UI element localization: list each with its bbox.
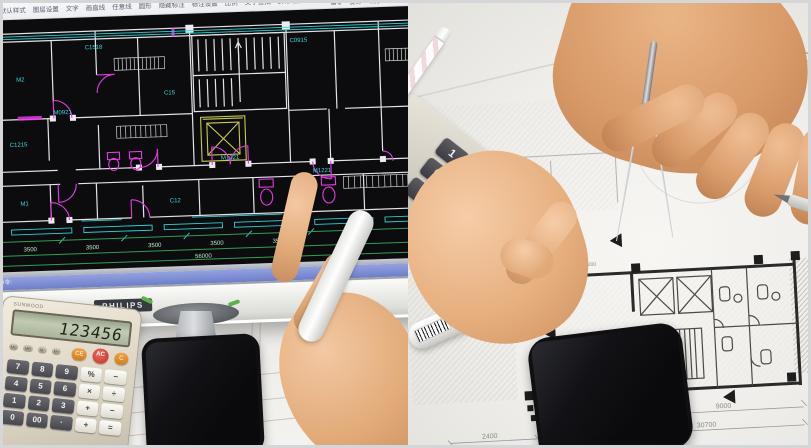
menu-item[interactable]: 屏幕缩放 [277,3,303,6]
svg-text:30700: 30700 [697,422,717,430]
cad-elevator-shaft [201,116,247,162]
menu-item[interactable]: 任意线 [112,3,132,11]
calc-key: 3 [52,398,75,414]
calc-key: 1 [3,393,26,409]
svg-text:C15: C15 [164,90,176,96]
svg-text:M1021: M1021 [221,155,240,162]
menu-item[interactable]: 文字查找 [244,3,270,7]
phone-screen [145,337,261,445]
svg-text:M2: M2 [16,77,25,83]
menu-item[interactable]: 默认样式 [3,4,26,15]
calc-key: ÷ [102,386,125,402]
hand-pointing-at-screen [251,153,408,445]
calc-key: % [80,367,103,383]
memory-key: MR [23,344,33,352]
svg-text:3500: 3500 [24,247,38,253]
menu-item[interactable]: 标注设置 [191,3,217,9]
svg-text:9000: 9000 [716,403,732,411]
menu-item[interactable]: 图层设置 [33,3,59,14]
menu-item[interactable]: 隐藏标注 [158,3,184,10]
calc-key: 00 [25,412,48,428]
calc-key: 5 [29,378,52,394]
svg-text:3500: 3500 [148,243,162,249]
svg-text:C1215: C1215 [10,142,29,149]
memory-key: MC [9,343,19,351]
index-finger [269,169,321,284]
menu-item[interactable]: 比例 [224,3,237,7]
svg-text:C12: C12 [170,198,182,204]
svg-text:M1: M1 [20,201,29,207]
svg-text:56000: 56000 [195,254,213,261]
right-photo-blueprint-desk: 2400 9000 30700 2000 5200 200 1 0 0 [408,3,811,445]
toolbar-button[interactable]: 复制 [349,3,361,6]
svg-text:2400: 2400 [482,433,498,441]
calc-key: 2 [27,395,50,411]
svg-text:3500: 3500 [210,241,224,247]
toolbar-button[interactable]: 关于 [387,3,399,5]
phone-screen [530,325,690,445]
calc-key: 6 [53,381,76,397]
menu-item[interactable]: 圆形 [138,3,151,10]
svg-text:C0915: C0915 [289,38,308,45]
calc-key: + [76,400,99,416]
calc-key: − [104,369,127,385]
svg-text:C1518: C1518 [85,45,104,52]
pencil [430,31,650,311]
calc-key: · [50,415,73,431]
calculator-keypad: 7 8 9 % − 4 5 6 × ÷ 1 2 3 + − 0 00 · + = [3,359,127,436]
toolbar-button[interactable]: 填充 [368,3,380,5]
menu-item[interactable]: 打印 [310,3,323,4]
svg-text:M0921: M0921 [53,110,72,117]
clear-key: C [113,352,129,365]
calc-key: 4 [5,376,28,392]
memory-key: M+ [52,347,62,355]
calc-key: + [74,417,97,433]
calc-key: = [99,420,122,436]
all-clear-key: AC [92,348,109,365]
clear-entry-key: CE [71,347,87,360]
calc-key: 7 [6,359,29,375]
menu-item[interactable]: 文字 [66,3,79,13]
smartphone-right [526,321,695,445]
calc-key: 9 [55,364,78,380]
calc-key: × [78,384,101,400]
calculator: SUNWOOD 123456 MC MR M- M+ CE AC C 7 8 9… [3,295,143,445]
left-photo-monitor-desk: 默认样式 图层设置 文字 画直线 任意线 圆形 隐藏标注 标注设置 比例 文字查… [3,3,408,445]
workspace-split-photo: 默认样式 图层设置 文字 画直线 任意线 圆形 隐藏标注 标注设置 比例 文字查… [0,0,811,448]
calc-key: 0 [3,410,24,426]
calc-key: 8 [31,361,54,377]
toolbar-button[interactable]: 编号 [330,3,342,7]
smartphone-left [141,333,265,445]
calc-key: − [101,403,124,419]
menu-item[interactable]: 画直线 [86,3,106,12]
memory-key: M- [37,346,47,354]
svg-text:3500: 3500 [86,245,100,251]
